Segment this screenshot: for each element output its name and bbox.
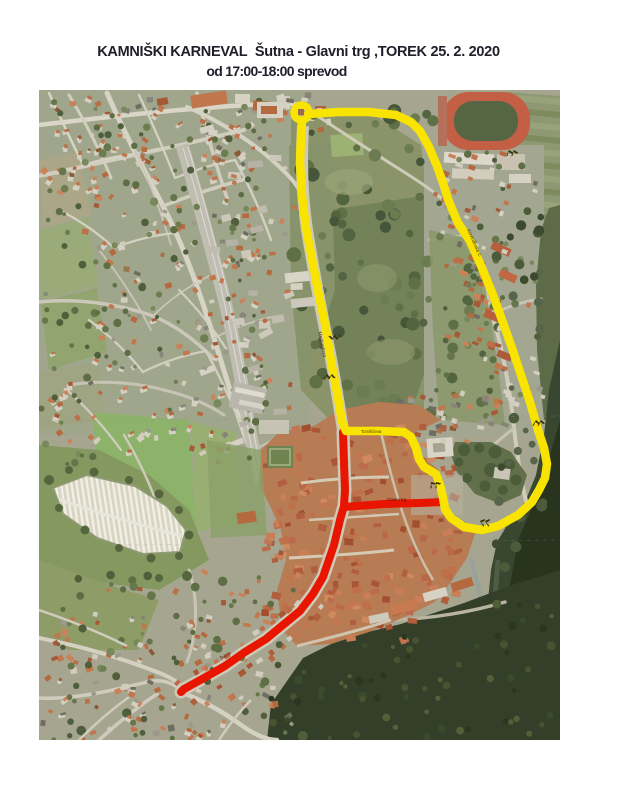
- svg-text:Tomšičeva: Tomšičeva: [361, 429, 382, 434]
- svg-text:Glavni trg: Glavni trg: [387, 497, 407, 502]
